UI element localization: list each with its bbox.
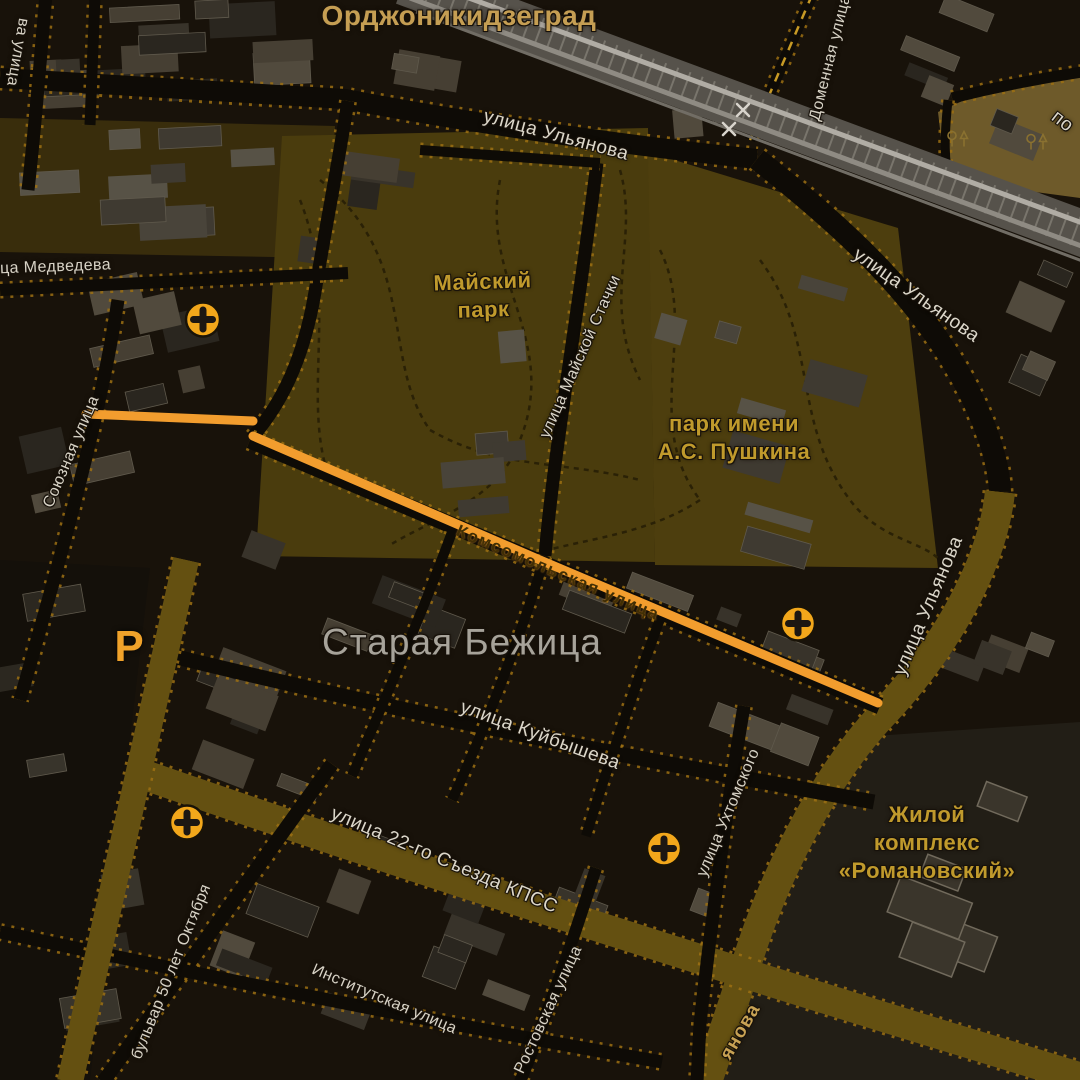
street-fragment-left: ва улица bbox=[1, 16, 33, 87]
street-komsomolskaya: Комсомольская улица bbox=[453, 520, 663, 626]
road-fragment-ulyanova-bottom: янова bbox=[715, 999, 767, 1064]
street-kuybysheva: улица Куйбышева bbox=[457, 696, 624, 776]
map-viewport[interactable]: Орджоникидзеградулица Ульяноваулица Улья… bbox=[0, 0, 1080, 1080]
street-bulvar-50-let-oktyabrya: бульвар 50 лет Октября bbox=[127, 881, 216, 1062]
street-22-syezda-kpss: улица 22-го Съезда КПСС bbox=[327, 802, 561, 920]
street-fragment-po: по bbox=[1046, 106, 1078, 139]
street-ulyanova-south: улица Ульянова bbox=[889, 532, 970, 679]
medical-cross-icon[interactable] bbox=[168, 804, 206, 847]
medical-cross-icon[interactable] bbox=[779, 605, 817, 648]
tree-icon bbox=[1024, 132, 1050, 157]
street-ulyanova-east: улица Ульянова bbox=[848, 243, 984, 349]
park-pushkina: парк имени А.С. Пушкина bbox=[658, 410, 811, 466]
medical-cross-icon[interactable] bbox=[645, 830, 683, 873]
street-domennaya: Доменная улица bbox=[805, 0, 856, 123]
street-institutskaya: Институтская улица bbox=[308, 960, 459, 1040]
tree-icon bbox=[945, 129, 971, 154]
locality-ordzhonikidzegrad: Орджоникидзеград bbox=[322, 0, 597, 34]
street-rostovskaya: Ростовская улица bbox=[510, 943, 587, 1078]
park-maysky: Майский парк bbox=[433, 266, 533, 326]
street-soyuznaya: Союзная улица bbox=[39, 393, 105, 511]
parking-icon[interactable]: P bbox=[114, 622, 143, 672]
locality-staraya-bezhitsa: Старая Бежица bbox=[322, 618, 602, 665]
street-ulyanova-north: улица Ульянова bbox=[481, 105, 632, 167]
map-labels-layer: Орджоникидзеградулица Ульяноваулица Улья… bbox=[0, 0, 1080, 1080]
street-medvedeva: улица Медведева bbox=[0, 255, 111, 280]
medical-cross-icon[interactable] bbox=[184, 301, 222, 344]
street-ukhtomskogo: улица Ухтомского bbox=[693, 746, 766, 881]
complex-romanovsky: Жилой комплекс «Романовский» bbox=[839, 801, 1015, 885]
street-mayskoy-stachki: улица Майской Стачки bbox=[536, 272, 627, 442]
